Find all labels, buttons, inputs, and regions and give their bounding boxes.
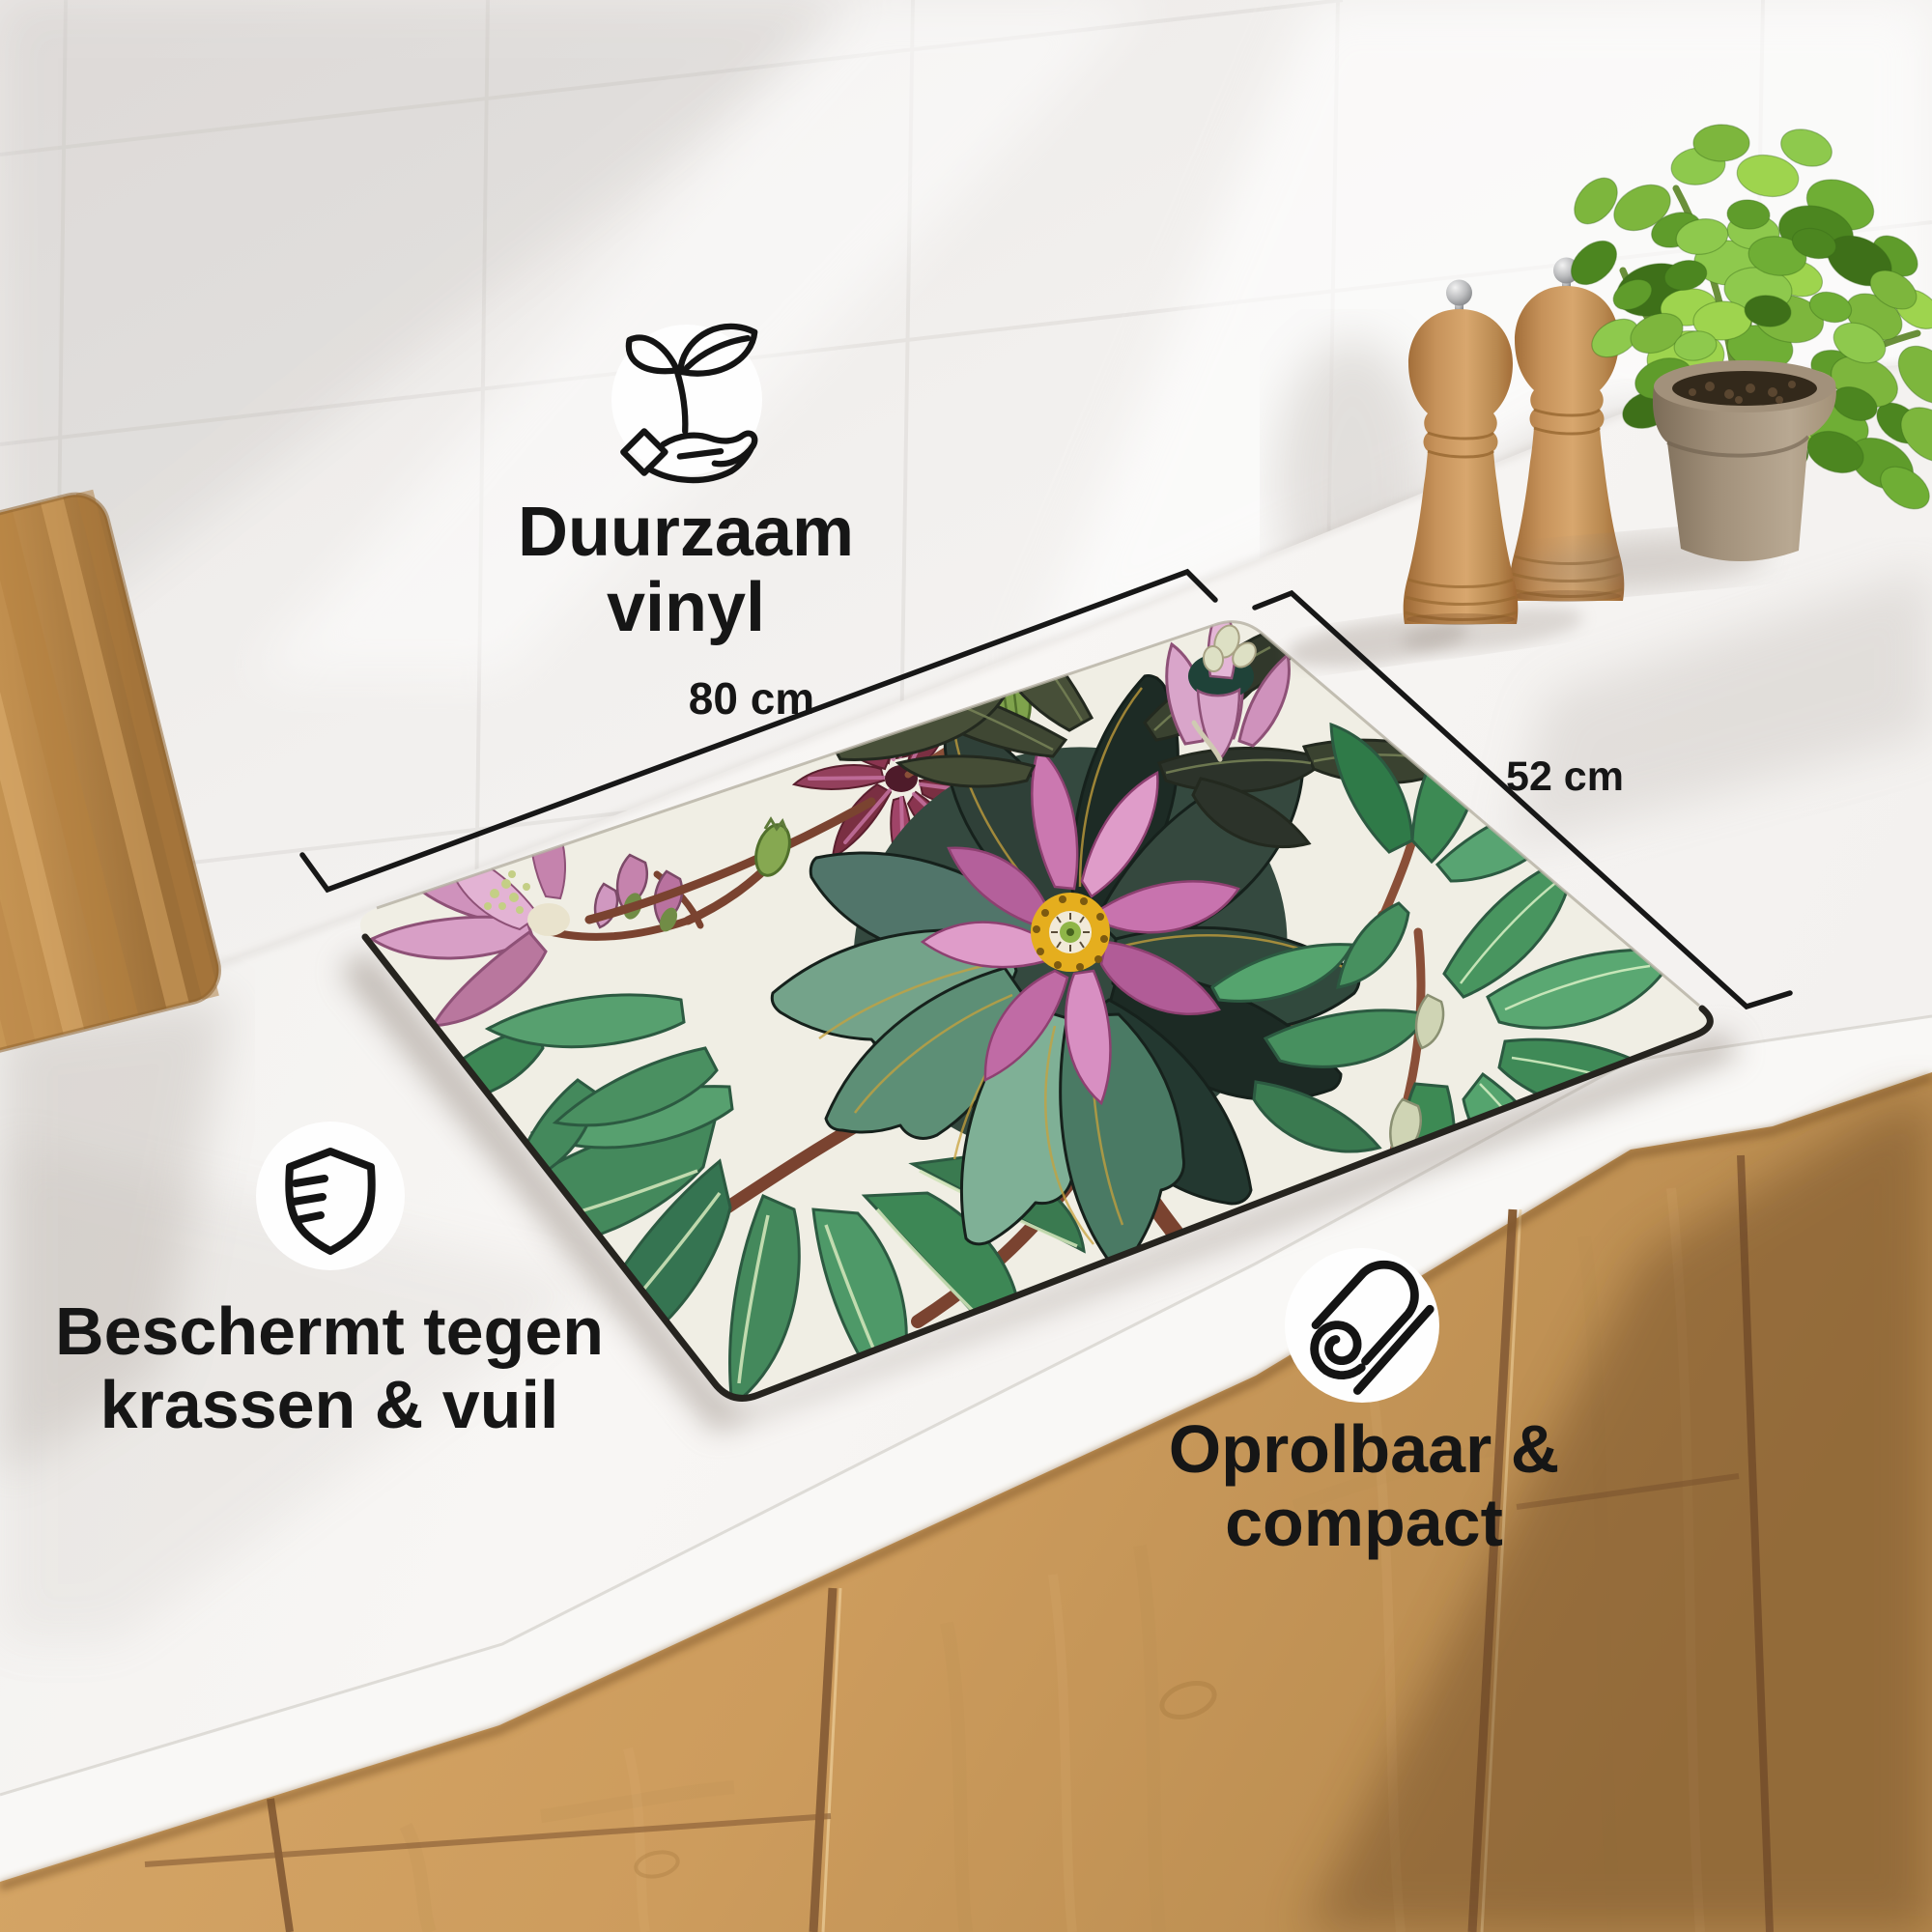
- svg-text:krassen & vuil: krassen & vuil: [100, 1367, 559, 1442]
- svg-text:Oprolbaar &: Oprolbaar &: [1169, 1411, 1560, 1487]
- svg-text:52 cm: 52 cm: [1506, 753, 1624, 800]
- svg-text:Beschermt tegen: Beschermt tegen: [55, 1293, 604, 1369]
- svg-text:compact: compact: [1225, 1485, 1503, 1560]
- svg-text:vinyl: vinyl: [607, 569, 765, 646]
- svg-text:80 cm: 80 cm: [689, 673, 814, 724]
- svg-text:Duurzaam: Duurzaam: [518, 494, 854, 571]
